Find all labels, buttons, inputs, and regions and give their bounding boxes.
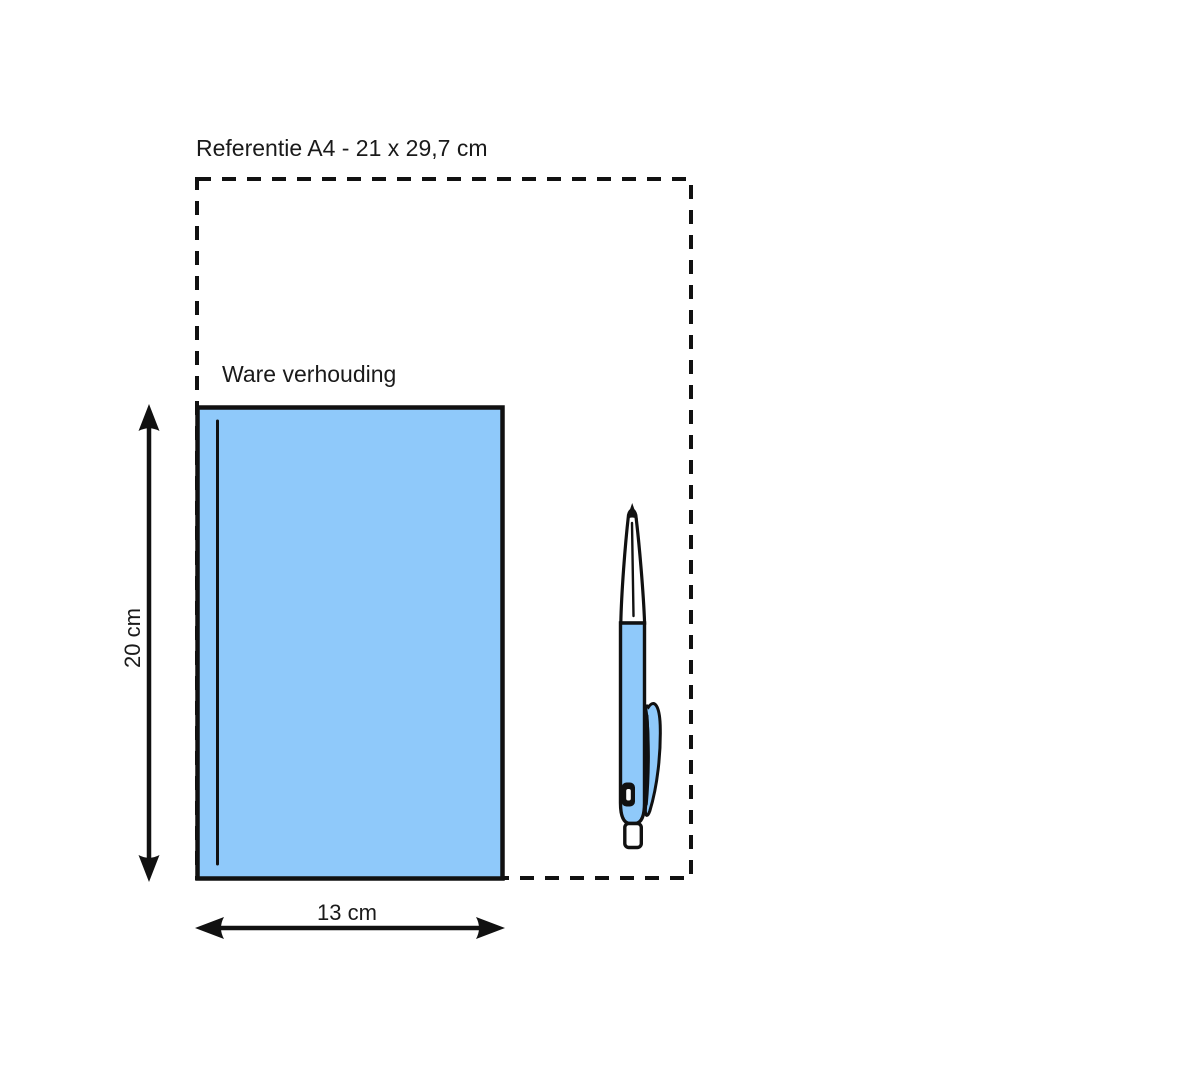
book-rectangle bbox=[198, 408, 503, 879]
a4-reference-title: Referentie A4 - 21 x 29,7 cm bbox=[196, 136, 488, 161]
pen-plunger bbox=[625, 824, 642, 848]
arrowhead-up-icon bbox=[139, 404, 160, 431]
pen-icon bbox=[621, 503, 661, 848]
size-reference-diagram: Referentie A4 - 21 x 29,7 cm Ware verhou… bbox=[0, 0, 1200, 1066]
diagram-canvas bbox=[0, 0, 1200, 1066]
arrowhead-down-icon bbox=[139, 855, 160, 882]
arrowhead-right-icon bbox=[476, 917, 505, 939]
pen-hole-slot bbox=[626, 789, 631, 801]
arrowhead-left-icon bbox=[195, 917, 224, 939]
true-proportion-label: Ware verhouding bbox=[222, 362, 396, 387]
pen-refill-line bbox=[632, 523, 634, 616]
height-dimension-label: 20 cm bbox=[121, 608, 145, 668]
pen-clip-groove bbox=[646, 716, 648, 804]
width-dimension-label: 13 cm bbox=[317, 901, 377, 925]
